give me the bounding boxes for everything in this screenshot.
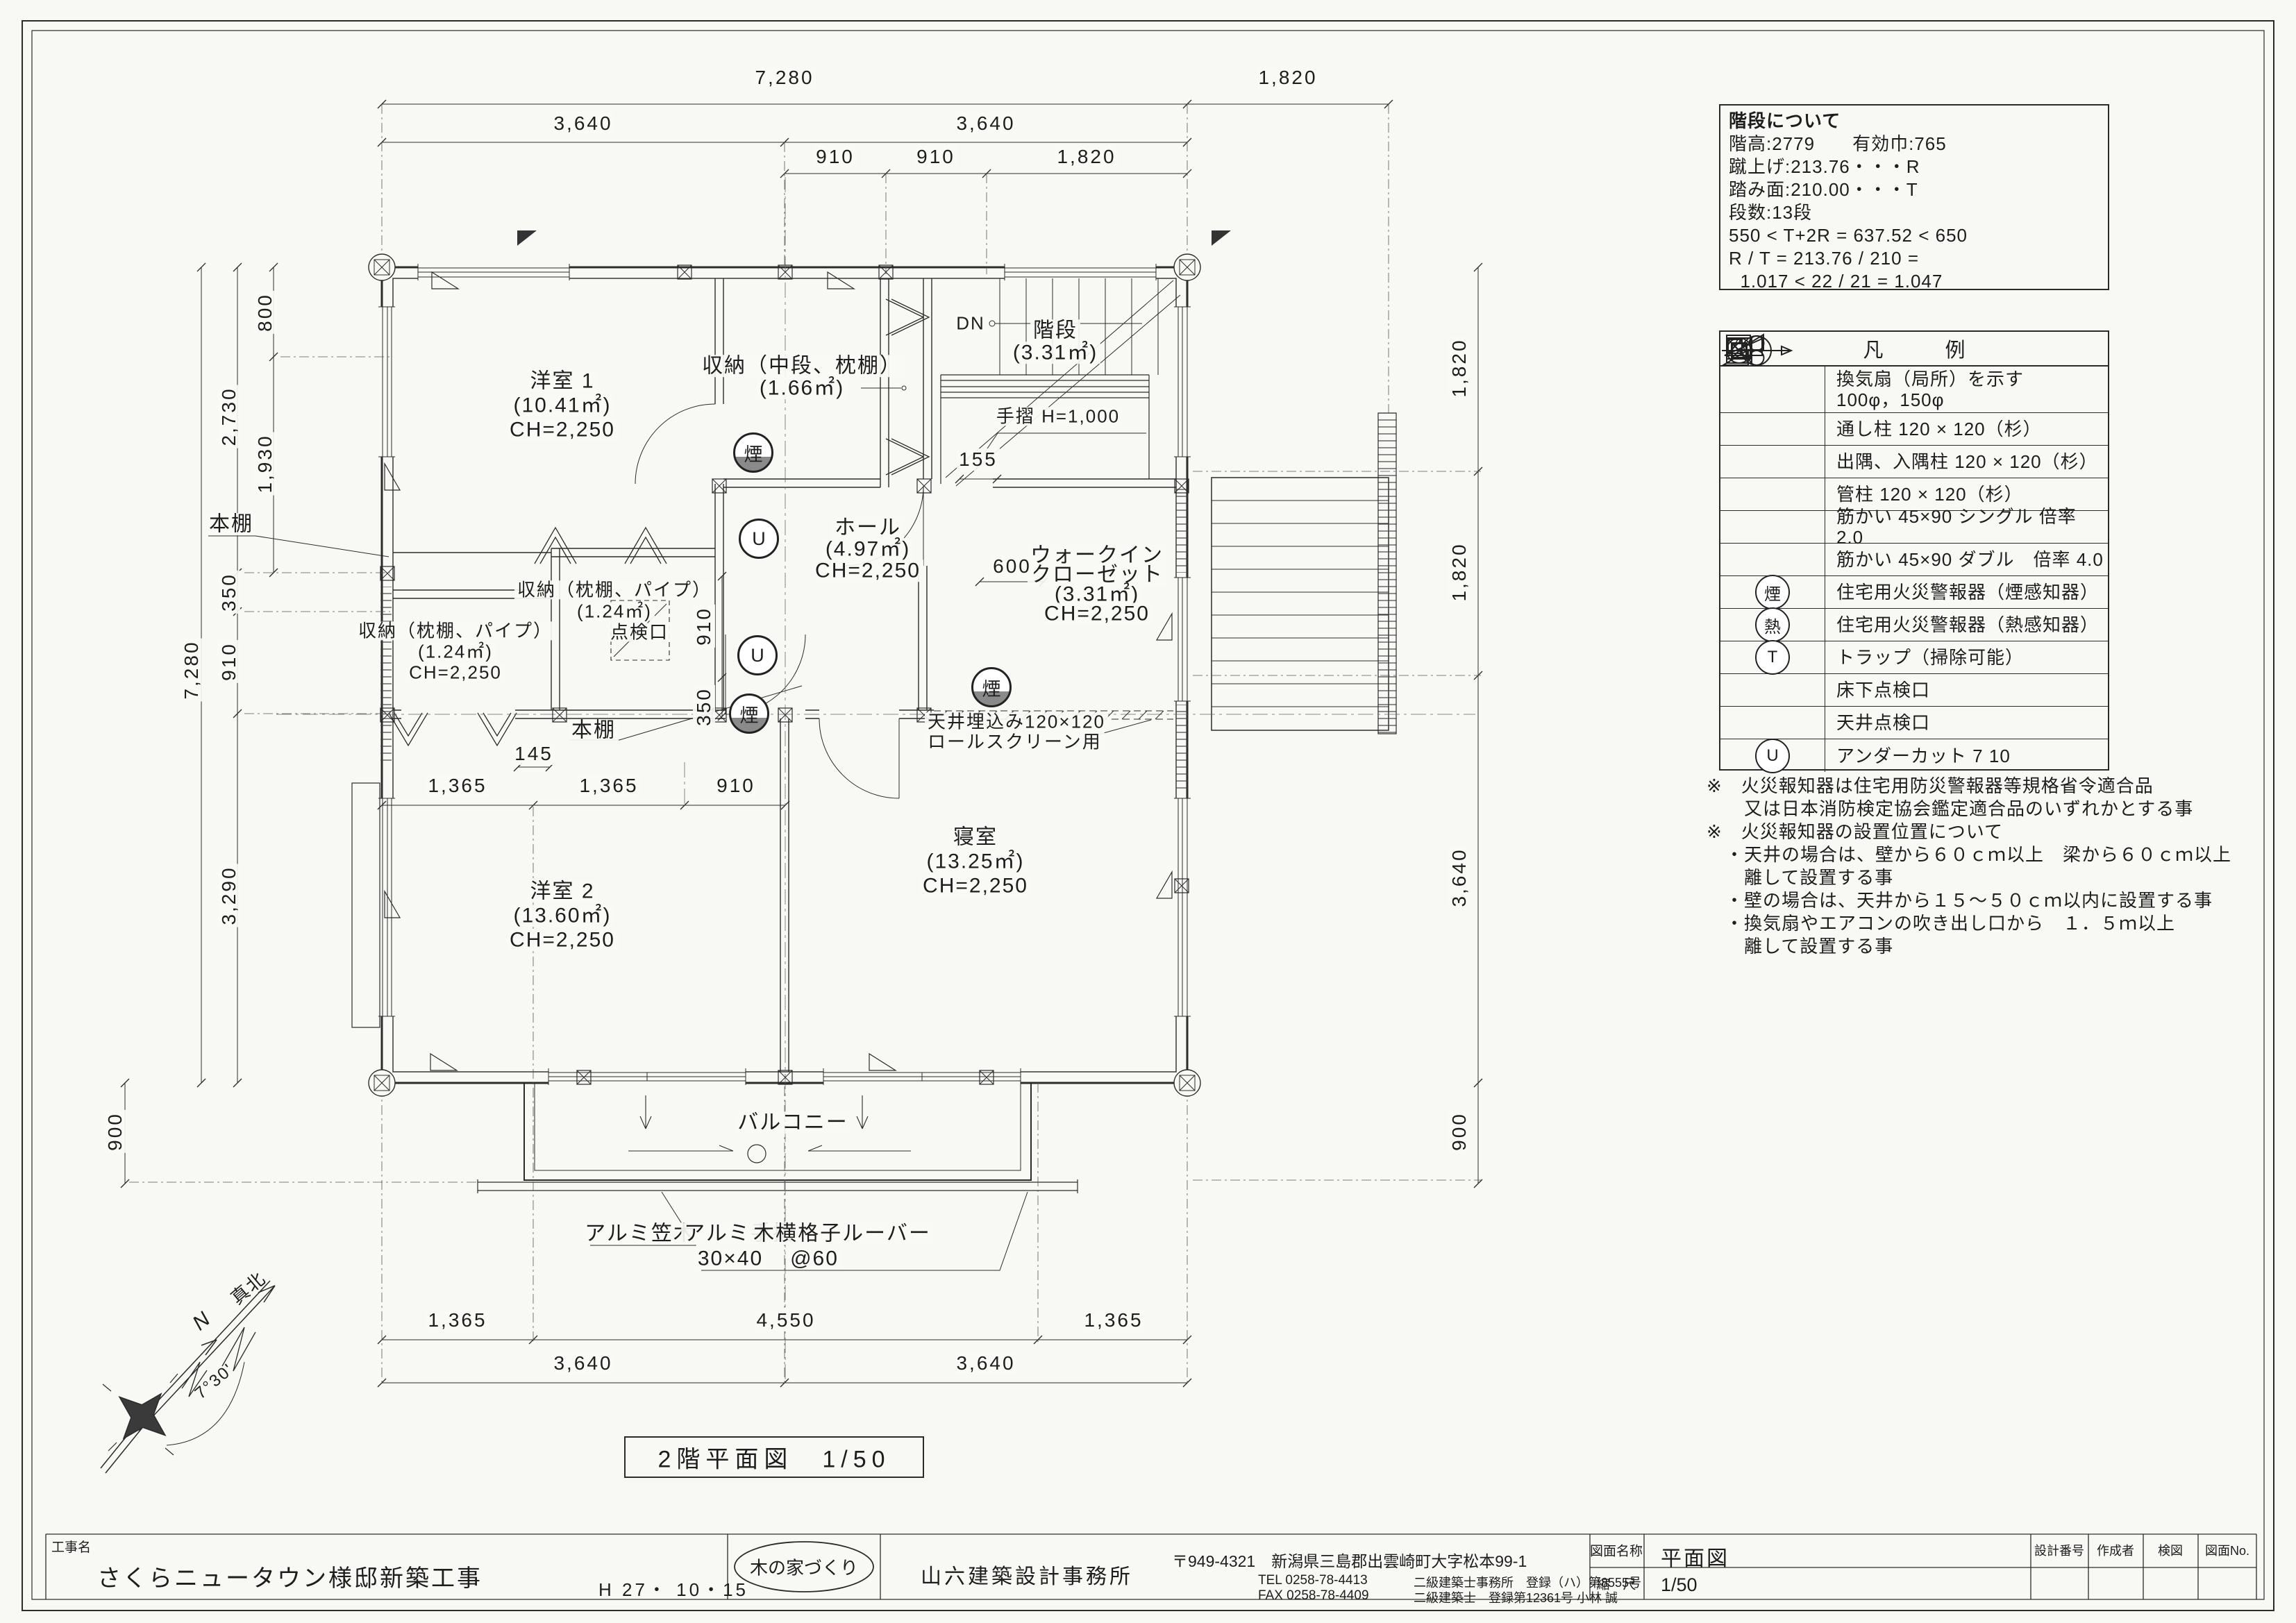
stair-info-line: 蹴上げ:213.76・・・R: [1729, 155, 2100, 178]
legend-text: 床下点検口: [1825, 674, 2108, 706]
legend-text: 換気扇（局所）を示す 100φ，150φ: [1825, 367, 2108, 412]
hall-ch: CH=2,250: [812, 560, 923, 582]
dim-label: 1,365: [426, 1309, 489, 1331]
note-line: ・換気扇やエアコンの吹き出し口から １．５ｍ以上: [1707, 912, 2116, 935]
legend-text: 出隅、入隅柱 120 × 120（杉）: [1825, 446, 2108, 478]
balcony-linework: [478, 1083, 1078, 1193]
legend-row: 換気扇（局所）を示す 100φ，150φ: [1720, 367, 2108, 413]
stair-dn-label: DN: [953, 314, 988, 333]
north-compass: [101, 1281, 275, 1473]
legend-text: 住宅用火災警報器（煙感知器）: [1825, 576, 2108, 608]
stair-info-line: 踏み面:210.00・・・T: [1729, 178, 2100, 201]
closet-left-name: 収納（枕棚、パイプ）: [355, 621, 555, 640]
legend-row: 筋かい 45×90 シングル 倍率 2.0: [1720, 511, 2108, 544]
dim-label: 3,640: [1448, 846, 1470, 909]
stair-info-line: 1.017 < 22 / 21 = 1.047: [1729, 270, 2100, 293]
dim-label: 3,290: [218, 864, 240, 927]
dim-label: 350: [693, 685, 715, 728]
legend-text: 筋かい 45×90 ダブル 倍率 4.0: [1825, 544, 2108, 575]
legend-row: Tトラップ（掃除可能）: [1720, 641, 2108, 674]
legend-row: 天井点検口: [1720, 707, 2108, 739]
dim-label: 1,820: [1256, 67, 1319, 89]
dim-label: 7,280: [181, 638, 203, 701]
stamp-label: 木の家づくり: [750, 1554, 858, 1580]
plan-title: 2階平面図 1/50: [657, 1440, 890, 1474]
dim-label: 910: [218, 640, 240, 683]
undercut-symbol: U: [739, 519, 779, 559]
room-yoshitsu1-ch: CH=2,250: [507, 419, 618, 441]
louver-pitch: @60: [787, 1247, 841, 1270]
legend-text: 天井点検口: [1825, 707, 2108, 739]
note-line: ※ 火災報知器の設置位置について: [1707, 821, 2116, 843]
scale-label: 縮 尺: [1596, 1574, 1636, 1593]
smoke-detector-icon: 煙: [1720, 575, 1825, 609]
dim-label: 3,640: [551, 1352, 614, 1374]
dim-label: 3,640: [954, 1352, 1017, 1374]
bedroom-ch: CH=2,250: [920, 875, 1031, 897]
dim-label: 600: [991, 555, 1034, 578]
dim-label: 1,820: [1448, 540, 1470, 603]
dim-label: 910: [693, 605, 715, 648]
bedroom-name: 寝室: [950, 826, 1000, 848]
balcony-label: バルコニー: [735, 1111, 850, 1134]
legend-text: 通し柱 120 × 120（杉）: [1825, 413, 2108, 445]
dim-label: 910: [914, 146, 957, 168]
dim-label: 1,365: [426, 775, 489, 797]
col-sheet-no: 図面No.: [2205, 1541, 2249, 1559]
smoke-detector-symbol: 煙: [733, 432, 773, 473]
undercut-symbol: U: [737, 635, 778, 675]
legend-row: Uアンダーカット 7 10: [1720, 739, 2108, 772]
dim-label: 910: [714, 775, 757, 797]
trap-icon: T: [1720, 640, 1825, 675]
legend-row: 出隅、入隅柱 120 × 120（杉）: [1720, 446, 2108, 478]
stair-info-line: 階段について: [1729, 110, 2100, 133]
legend-text: 筋かい 45×90 シングル 倍率 2.0: [1825, 511, 2108, 543]
license-2: 二級建築士 登録第12361号 小林 誠: [1414, 1588, 1618, 1606]
handrail-label: 手摺 H=1,000: [994, 407, 1123, 426]
dim-label: 350: [218, 571, 240, 614]
drawing-sheet: 洋室 1 (10.41㎡) CH=2,250 収納（中段、枕棚） (1.66㎡)…: [0, 0, 2296, 1623]
stair-area: (3.31㎡): [1010, 342, 1100, 364]
legend-row: 煙住宅用火災警報器（煙感知器）: [1720, 576, 2108, 609]
smoke-detector-symbol: 煙: [729, 693, 769, 734]
room-yoshitsu1-name: 洋室 1: [527, 370, 597, 392]
dim-label: 910: [814, 146, 857, 168]
note-line: 又は日本消防検定協会鑑定適合品のいずれかとする事: [1707, 798, 2116, 821]
smoke-detector-symbol: 煙: [971, 667, 1012, 707]
sheet-name-label: 図面名称: [1590, 1541, 1643, 1560]
legend-text: アンダーカット 7 10: [1825, 739, 2108, 772]
dim-label: 7,280: [753, 67, 816, 89]
heat-detector-icon: 熱: [1720, 607, 1825, 642]
walkin-ch: CH=2,250: [1041, 603, 1153, 625]
dim-label: 1,820: [1055, 146, 1118, 168]
sheet-name: 平面図: [1661, 1541, 1729, 1572]
stair-info-box: 階段について階高:2779 有効巾:765蹴上げ:213.76・・・R踏み面:2…: [1719, 104, 2109, 290]
dim-label: 900: [104, 1110, 126, 1153]
dim-label: 145: [512, 743, 555, 765]
dim-label: 1,365: [1082, 1309, 1145, 1331]
ceiling-note-2: ロールスクリーン用: [925, 732, 1105, 751]
date-field: H 27・ 10・15: [598, 1576, 748, 1601]
note-line: ・天井の場合は、壁から６０ｃｍ以上 梁から６０ｃｍ以上: [1707, 843, 2116, 866]
office-fax: FAX 0258-78-4409: [1258, 1588, 1369, 1604]
louver-label: 木横格子ルーバー: [751, 1222, 934, 1245]
dim-label: 1,820: [1448, 336, 1470, 399]
legend-row: 通し柱 120 × 120（杉）: [1720, 413, 2108, 446]
stair-info-line: R / T = 213.76 / 210 =: [1729, 247, 2100, 270]
bookshelf-label-2: 本棚: [569, 719, 619, 741]
stair-info-line: 階高:2779 有効巾:765: [1729, 133, 2100, 155]
closet-right-name: 収納（枕棚、パイプ）: [514, 580, 714, 599]
leader-lines: [208, 386, 1151, 1270]
room-yoshitsu2-ch: CH=2,250: [507, 929, 618, 951]
hall-area: (4.97㎡): [823, 538, 913, 560]
dim-label: 155: [957, 448, 1000, 471]
bedroom-area: (13.25㎡): [923, 850, 1027, 873]
project-name: さくらニュータウン様邸新築工事: [97, 1559, 483, 1593]
col-check: 検図: [2158, 1541, 2183, 1559]
dim-label: 1,930: [254, 432, 276, 495]
closet-right-hatch: 点検口: [607, 623, 671, 641]
legend-text: トラップ（掃除可能）: [1825, 641, 2108, 673]
note-line: ・壁の場合は、天井から１５～５０ｃｍ以内に設置する事: [1707, 889, 2116, 912]
col-author: 作成者: [2097, 1541, 2134, 1559]
note-line: 離して設置する事: [1707, 866, 2116, 889]
office-tel: TEL 0258-78-4413: [1258, 1573, 1368, 1588]
tesuri-size: 30×40: [695, 1247, 766, 1270]
corner-print-marks: [517, 230, 1231, 246]
legend-row: 熱住宅用火災警報器（熱感知器）: [1720, 609, 2108, 641]
stair-name: 階段: [1030, 319, 1080, 342]
note-line: 離して設置する事: [1707, 935, 2116, 958]
room-yoshitsu2-area: (13.60㎡): [510, 905, 614, 927]
dim-label: 800: [254, 291, 276, 334]
room-yoshitsu2-name: 洋室 2: [527, 880, 597, 902]
ceiling-note-1: 天井埋込み120×120: [925, 712, 1108, 731]
bookshelf-label-1: 本棚: [206, 513, 256, 535]
dim-label: 1,365: [577, 775, 640, 797]
dim-label: 4,550: [754, 1309, 817, 1331]
dim-label: 900: [1448, 1110, 1470, 1153]
stair-info-line: 550 < T+2R = 637.52 < 650: [1729, 224, 2100, 247]
closet-top-name: 収納（中段、枕棚）: [699, 355, 905, 377]
office-address: 〒949-4321 新潟県三島郡出雲崎町大字松本99-1: [1172, 1548, 1527, 1572]
fire-alarm-notes: ※ 火災報知器は住宅用防災警報器等規格省令適合品 又は日本消防検定協会鑑定適合品…: [1707, 775, 2116, 958]
room-yoshitsu1-area: (10.41㎡): [510, 394, 614, 417]
closet-right-area: (1.24㎡): [574, 602, 655, 621]
closet-top-area: (1.66㎡): [757, 377, 847, 399]
legend-row: 筋かい 45×90 ダブル 倍率 4.0: [1720, 544, 2108, 576]
hall-name: ホール: [832, 516, 904, 539]
scale-value: 1/50: [1661, 1574, 1698, 1596]
legend-box: 凡 例 換気扇（局所）を示す 100φ，150φ通し柱 120 × 120（杉）…: [1719, 330, 2109, 771]
dim-label: 3,640: [954, 112, 1017, 135]
note-line: ※ 火災報知器は住宅用防災警報器等規格省令適合品: [1707, 775, 2116, 798]
stair-info-line: 段数:13段: [1729, 201, 2100, 224]
office-name: 山六建築設計事務所: [921, 1559, 1133, 1590]
dim-label: 2,730: [218, 385, 240, 448]
dim-label: 3,640: [551, 112, 614, 135]
closet-left-ch: CH=2,250: [406, 663, 505, 682]
col-design-no: 設計番号: [2034, 1541, 2084, 1559]
closet-left-area: (1.24㎡): [415, 642, 496, 661]
project-label: 工事名: [51, 1537, 91, 1556]
legend-row: 床下点検口: [1720, 674, 2108, 707]
undercut-icon: U: [1720, 739, 1825, 773]
legend-text: 住宅用火災警報器（熱感知器）: [1825, 609, 2108, 641]
